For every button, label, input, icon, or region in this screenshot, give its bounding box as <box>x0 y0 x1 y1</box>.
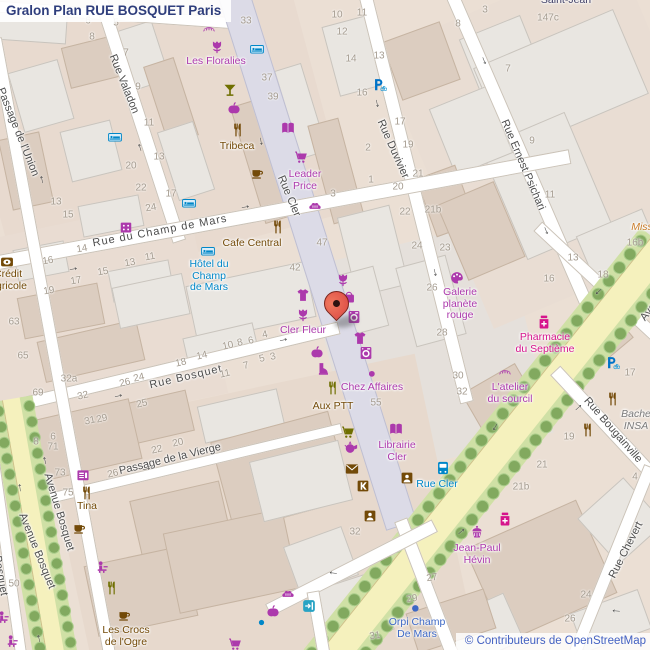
house-number: 14 <box>76 243 89 256</box>
house-number: 11 <box>545 190 555 201</box>
house-number: 31 <box>369 630 382 642</box>
house-number: 7 <box>505 64 511 75</box>
map-title-bar: Gralon Plan RUE BOSQUET Paris <box>0 0 231 22</box>
restaurant-icon <box>605 392 619 406</box>
bank-label: Crédit Agricole <box>0 269 27 292</box>
bicycle-parking-icon <box>373 78 387 92</box>
beauty-label: L'atelier du sourcil <box>488 382 533 405</box>
house-number: 21b <box>425 205 442 216</box>
house-number: 30 <box>452 371 463 382</box>
restaurant-icon <box>230 123 244 137</box>
oneway-arrow-icon: → <box>255 134 271 148</box>
hotel-icon <box>250 42 264 56</box>
metro-entrance-icon <box>302 599 316 613</box>
map-canvas[interactable]: Rue ValadonRue ClerRue DuvivierRue Ernes… <box>0 0 650 650</box>
house-number: 21 <box>536 460 547 471</box>
convenience-icon <box>341 425 355 439</box>
house-number: 75 <box>62 488 73 499</box>
chocolatier-icon <box>470 525 484 539</box>
house-number: 16 <box>356 88 367 99</box>
florist-icon <box>336 273 350 287</box>
house-number: 13 <box>567 253 578 264</box>
estate-agent-icon <box>411 604 420 613</box>
bookshop-icon <box>389 422 403 436</box>
oneway-arrow-icon: → <box>238 197 252 213</box>
area-label-label: Bache INSA <box>621 409 650 432</box>
house-number: 16 <box>543 274 554 285</box>
house-number: 69 <box>32 388 43 399</box>
house-number: 13 <box>373 51 384 62</box>
cafe-label: Les Crocs de l'Ogre <box>102 625 149 648</box>
house-number: 22 <box>135 183 146 194</box>
money-exchange-icon <box>356 479 370 493</box>
house-number: 28 <box>436 328 447 339</box>
house-number: 2 <box>365 143 371 154</box>
clothes-shop-icon <box>353 331 367 345</box>
florist-label: Cler Fleur <box>280 325 326 337</box>
bakery-icon <box>308 199 322 213</box>
restaurant-icon <box>104 581 118 595</box>
post-office-icon <box>345 462 359 476</box>
pharmacy-label: Pharmacie du Septième <box>516 332 575 355</box>
house-number: 11 <box>144 251 156 264</box>
oneway-arrow-icon: → <box>10 481 26 495</box>
house-number: 8 <box>89 32 95 43</box>
house-number: 3 <box>330 189 336 200</box>
house-number: 24 <box>145 202 158 215</box>
house-number: 26 <box>564 614 575 625</box>
house-number: 8 <box>455 19 461 30</box>
house-number: 17 <box>70 275 83 288</box>
house-number: 10 <box>331 10 342 21</box>
house-number: 39 <box>267 92 278 103</box>
bar-icon <box>223 83 237 97</box>
supermarket-icon <box>228 637 242 650</box>
house-number: 15 <box>97 266 110 279</box>
house-number: 20 <box>392 182 403 193</box>
florist-label: Les Floralies <box>186 56 246 68</box>
house-number: 47 <box>316 238 327 249</box>
oneway-arrow-icon: → <box>609 606 622 621</box>
bakery-icon <box>281 587 295 601</box>
chocolatier-label: Jean-Paul Hévin <box>453 543 500 566</box>
house-number: 55 <box>370 398 381 409</box>
house-number: 9 <box>135 82 141 93</box>
house-number: 13 <box>50 197 61 208</box>
house-number: 20 <box>125 161 136 172</box>
house-number: 26 <box>426 283 437 294</box>
house-number: 17 <box>394 117 405 128</box>
hairdresser-icon <box>96 560 110 574</box>
place-label-label: Saint-Jean <box>541 0 591 7</box>
restaurant-label: Chez Affaires <box>341 382 403 394</box>
newsagent-icon <box>76 468 90 482</box>
house-number: 17 <box>624 368 635 379</box>
hairdresser-icon <box>6 634 20 648</box>
house-number: 63 <box>8 317 19 328</box>
tea-shop-icon <box>344 440 358 454</box>
pharmacy-icon <box>498 512 512 526</box>
house-number: 11 <box>144 118 154 129</box>
house-number: 71 <box>47 442 58 453</box>
house-number: 16b <box>627 238 644 249</box>
house-number: 1 <box>368 175 374 186</box>
house-number: 73 <box>54 468 65 479</box>
house-number: 42 <box>289 263 300 274</box>
map-marker-pin <box>321 291 351 327</box>
house-number: 12 <box>336 27 347 38</box>
osm-attribution-link[interactable]: © Contributeurs de OpenStreetMap <box>456 633 650 650</box>
house-number: 23 <box>439 243 450 254</box>
house-number: 11 <box>357 8 367 19</box>
greengrocer-icon <box>227 101 241 115</box>
house-number: 65 <box>17 351 28 362</box>
restaurant-label: Cafe Central <box>223 238 282 250</box>
house-number: 3 <box>482 5 488 16</box>
house-number: 8 <box>33 437 39 448</box>
page-title: Gralon Plan RUE BOSQUET Paris <box>6 3 221 18</box>
house-number: 19 <box>563 432 574 443</box>
house-number: 32 <box>456 387 467 398</box>
poi-dot-icon <box>258 619 265 626</box>
restaurant-icon <box>580 423 594 437</box>
bookshop-icon <box>281 121 295 135</box>
laundry-icon <box>359 346 373 360</box>
hotel-icon <box>201 244 215 258</box>
clothes-shop-icon <box>296 288 310 302</box>
supermarket-icon <box>294 150 308 164</box>
house-number: 4 <box>632 472 638 483</box>
bus-stop-label: Rue Cler <box>416 479 457 491</box>
house-number: 13 <box>153 152 164 163</box>
bicycle-parking-icon <box>606 356 620 370</box>
restaurant-icon <box>270 220 284 234</box>
house-number: 11 <box>219 367 232 380</box>
restaurant-icon <box>79 486 93 500</box>
cafe-icon <box>251 166 265 180</box>
house-number: 33 <box>240 16 251 27</box>
poi-dot-icon <box>368 370 376 378</box>
beauty-icon <box>202 22 216 36</box>
marker-pin-head <box>318 286 353 321</box>
house-number: 32 <box>349 527 360 538</box>
house-number: 18 <box>597 270 608 281</box>
bookshop-label: Librairie Cler <box>378 440 415 463</box>
house-number: 17 <box>165 189 176 200</box>
shoe-shop-icon <box>316 362 330 376</box>
house-number: 19 <box>43 285 56 298</box>
restaurant-label: Tina <box>77 501 97 513</box>
cafe-icon <box>73 521 87 535</box>
atm-icon <box>400 471 414 485</box>
oneway-arrow-icon: → <box>371 96 387 111</box>
house-number: 22 <box>399 207 410 218</box>
chocolate-box-icon <box>119 220 133 234</box>
area-label-label: Miss <box>631 222 650 234</box>
bank-icon <box>0 255 14 269</box>
hotel-icon <box>108 130 122 144</box>
hotel-icon <box>182 196 196 210</box>
florist-icon <box>210 40 224 54</box>
oneway-arrow-icon: → <box>66 259 80 275</box>
greengrocer-icon <box>266 604 280 618</box>
bus-stop-icon <box>436 461 450 475</box>
oneway-arrow-icon: → <box>326 567 340 583</box>
greengrocer-icon <box>310 345 324 359</box>
supermarket-label: Leader Price <box>289 169 322 192</box>
house-number: 7 <box>123 48 129 59</box>
house-number: 15 <box>62 210 73 221</box>
house-number: 19 <box>402 140 413 151</box>
house-number: 147c <box>537 13 559 24</box>
house-number: 37 <box>261 73 272 84</box>
house-number: 3 <box>269 351 277 363</box>
house-number: 16 <box>42 255 55 268</box>
restaurant-label: Tribeca <box>220 141 255 153</box>
pharmacy-icon <box>537 315 551 329</box>
house-number: 9 <box>529 136 535 147</box>
house-number: 27 <box>426 572 439 584</box>
atm-icon <box>363 509 377 523</box>
beauty-icon <box>498 365 512 379</box>
house-number: 32a <box>61 374 78 385</box>
house-number: 21b <box>513 482 530 493</box>
estate-agent-label: Orpi Champ De Mars <box>389 617 446 640</box>
hairdresser-icon <box>0 610 11 624</box>
house-number: 5 <box>258 353 266 365</box>
house-number: 21 <box>412 169 423 180</box>
house-number: 24 <box>580 590 591 601</box>
house-number: 7 <box>242 360 250 372</box>
art-gallery-icon <box>450 271 464 285</box>
art-gallery-label: Galerie planète rouge <box>443 287 477 322</box>
restaurant-icon <box>325 381 339 395</box>
shop-label-label: Aux PTT <box>313 401 354 413</box>
house-number: 24 <box>411 241 422 252</box>
house-number: 14 <box>345 54 356 65</box>
hotel-label: Hôtel du Champ de Mars <box>189 259 228 294</box>
house-number: 50 <box>8 579 19 590</box>
house-number: 4 <box>261 329 269 341</box>
cafe-icon <box>118 608 132 622</box>
florist-icon <box>296 308 310 322</box>
house-number: 13 <box>124 257 137 270</box>
